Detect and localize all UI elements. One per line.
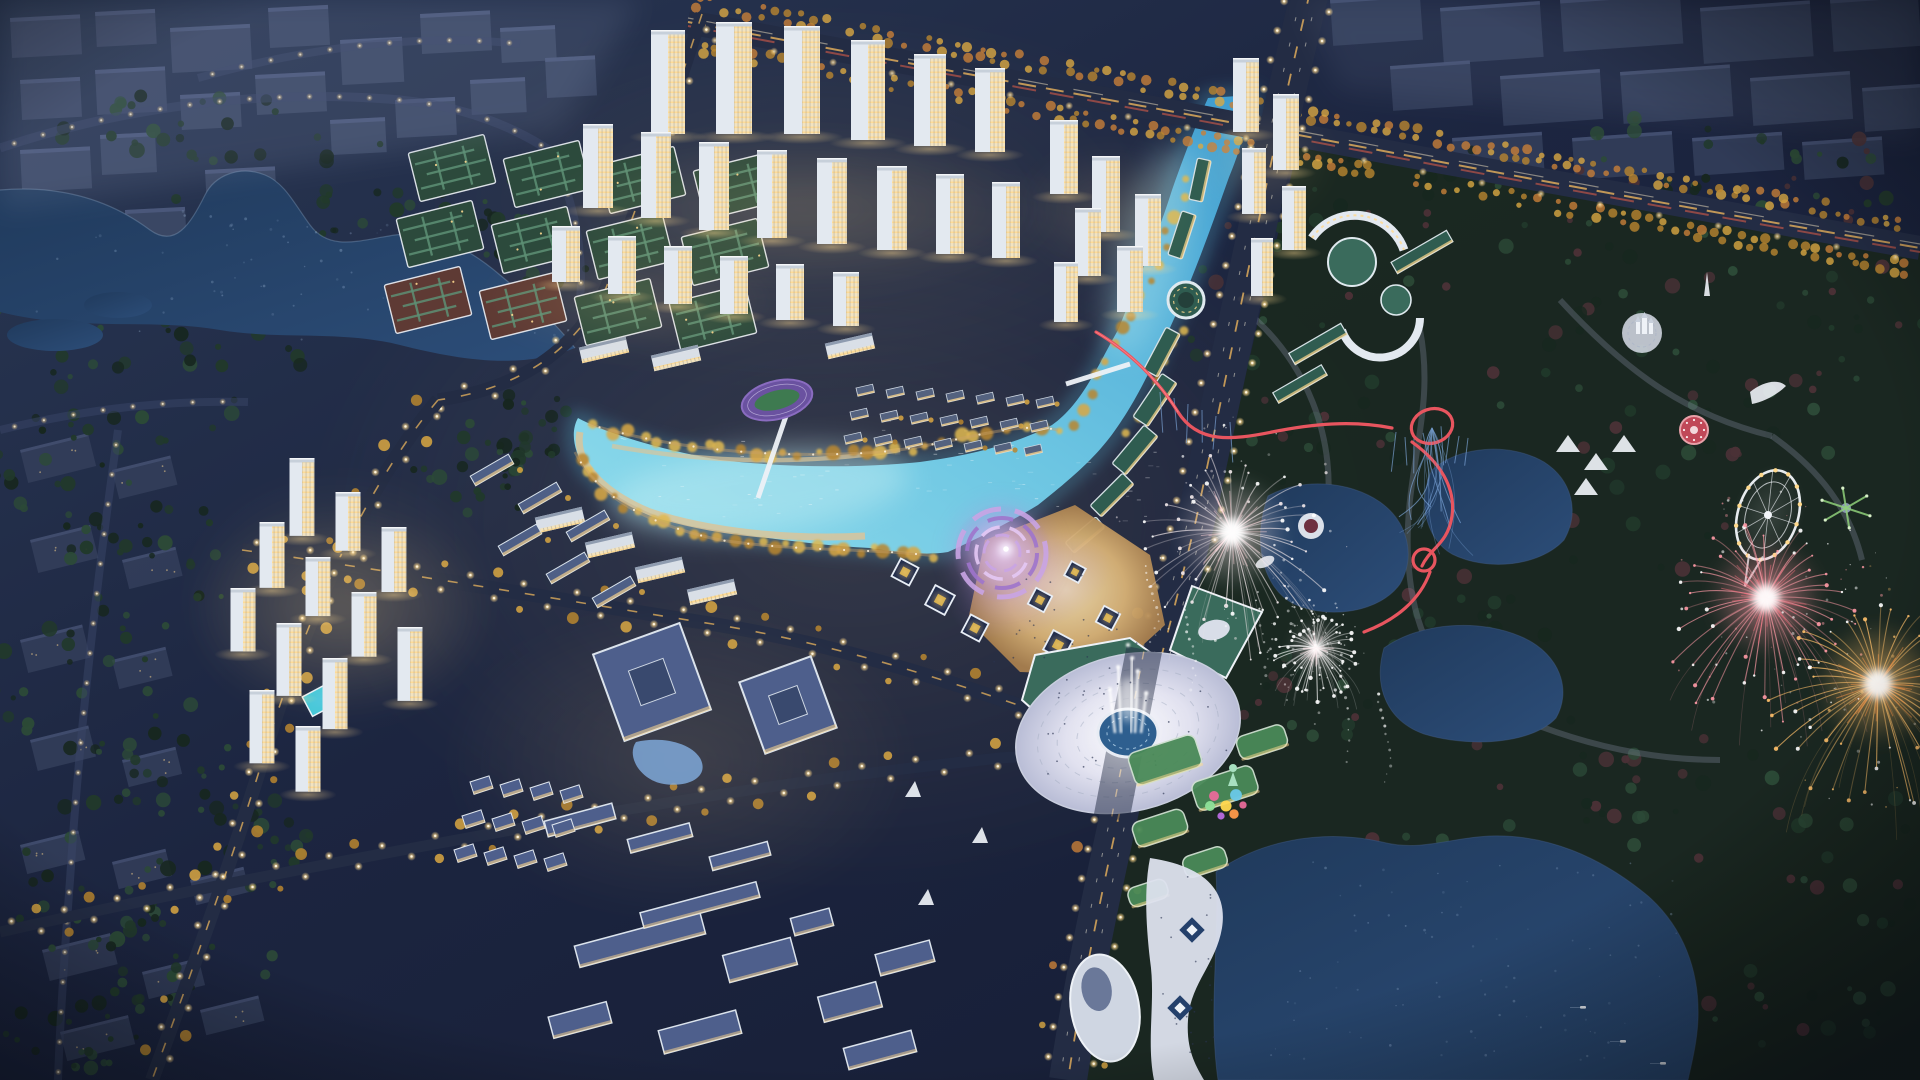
atmosphere-vignette bbox=[0, 0, 1920, 1080]
masterplan-aerial-rendering bbox=[0, 0, 1920, 1080]
rendering-canvas bbox=[0, 0, 1920, 1080]
